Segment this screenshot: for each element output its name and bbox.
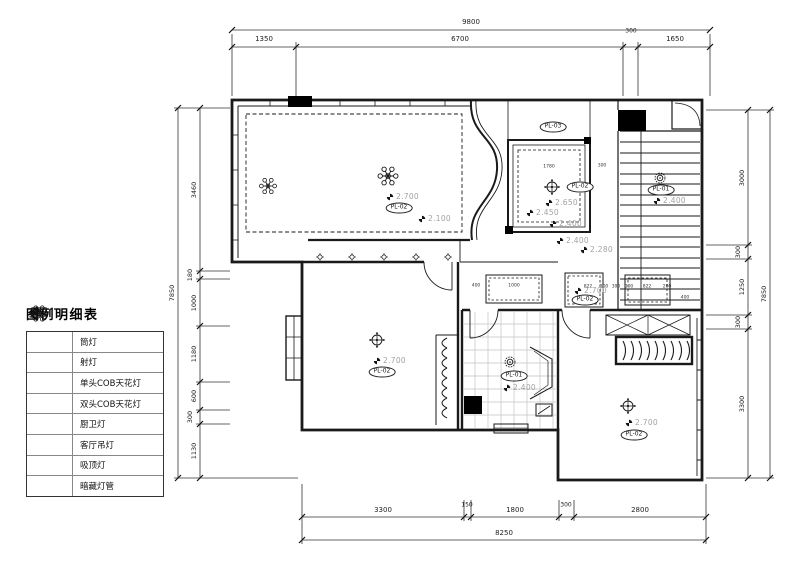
dim-right-overall: 7850 <box>760 286 768 303</box>
spotlight-icon <box>387 194 393 200</box>
height-living-edge: 2.100 <box>428 214 451 223</box>
dim-left-1: 3460 <box>190 182 198 199</box>
downlight-icon <box>27 332 73 352</box>
legend-label: 单头COB天花灯 <box>73 377 163 389</box>
spotlight-icon <box>27 353 73 373</box>
height-living: 2.700 <box>396 192 419 201</box>
legend-label: 射灯 <box>73 356 163 368</box>
legend-table: 筒灯 射灯 单头COB天花灯 双头COB天花灯 <box>26 331 164 497</box>
tag-pl01-stairs: PL-01 <box>648 185 675 196</box>
structural-columns <box>288 96 646 414</box>
tag-pl02-dining: PL-02 <box>567 182 594 193</box>
tag-pl01-bath: PL-01 <box>501 371 528 382</box>
dim-right-1: 3000 <box>738 170 746 187</box>
dim-left-2: 180 <box>186 269 194 281</box>
dim-inner-cove-4: 100 <box>625 285 634 290</box>
legend-row: 客厅吊灯 <box>27 434 163 455</box>
tag-pl02-bedroom1: PL-02 <box>369 367 396 378</box>
height-bedroom1: 2.700 <box>383 356 406 365</box>
ceiling-lamp-icon <box>27 456 73 476</box>
dim-inner-hall-2: 1000 <box>508 284 519 289</box>
dim-inner-cove-6: 200 <box>663 285 672 290</box>
dim-inner-cove-7: 400 <box>681 296 690 301</box>
dim-right-2: 300 <box>734 246 742 258</box>
legend-label: 暗藏灯管 <box>73 480 163 492</box>
downlight-icon <box>412 253 420 261</box>
dim-top-overall: 9800 <box>462 18 480 26</box>
tag-pl02-living: PL-02 <box>386 203 413 214</box>
dim-inner-cove-5: 822 <box>643 285 652 290</box>
dim-top-2: 6700 <box>451 35 469 43</box>
living-chandelier-icon <box>378 167 398 185</box>
stairs-kitchen-bath-light-icon <box>655 173 665 183</box>
spotlight-icon <box>626 420 632 426</box>
bedroom1-ceiling-lamp-icon <box>369 332 385 348</box>
dim-left-6: 300 <box>186 411 194 423</box>
dim-bottom-5: 2800 <box>631 506 649 514</box>
downlight-icon <box>380 253 388 261</box>
downlight-icon <box>348 253 356 261</box>
legend-row: 暗藏灯管 <box>27 475 163 496</box>
dim-right-4: 300 <box>734 316 742 328</box>
dim-left-5: 600 <box>190 390 198 402</box>
legend-label: 双头COB天花灯 <box>73 398 163 410</box>
dim-inner-cove-3: 390 <box>612 285 621 290</box>
legend-row: 厨卫灯 <box>27 413 163 434</box>
dim-top-4: 1650 <box>666 35 684 43</box>
legend-label: 筒灯 <box>73 336 163 348</box>
cob-single-icon <box>27 373 73 393</box>
spotlight-icon <box>546 200 552 206</box>
dim-left-7: 1130 <box>190 443 198 460</box>
living-chandelier-icon <box>27 435 73 455</box>
dim-bottom-overall: 8250 <box>495 529 513 537</box>
tag-pl03: PL-03 <box>540 122 567 133</box>
legend-row: 筒灯 <box>27 332 163 352</box>
legend-label: 吸顶灯 <box>73 459 163 471</box>
concealed-tube-icon <box>27 476 73 496</box>
dim-left-4: 1180 <box>190 346 198 363</box>
tag-pl02-bedroom2: PL-02 <box>621 430 648 441</box>
legend-row: 双头COB天花灯 <box>27 393 163 414</box>
dim-bottom-3: 1800 <box>506 506 524 514</box>
spotlight-icon <box>504 385 510 391</box>
cob-double-icon <box>27 394 73 414</box>
dim-bottom-2: 150 <box>461 502 472 509</box>
height-hall: 2.700 <box>584 286 607 295</box>
bedroom2-ceiling-lamp-icon <box>620 398 636 414</box>
legend-panel: 图例明细表 筒灯 射灯 单头COB天花灯 <box>26 304 164 497</box>
height-bedroom2: 2.700 <box>635 418 658 427</box>
legend-row: 吸顶灯 <box>27 455 163 476</box>
spotlight-icon <box>527 210 533 216</box>
spotlight-icon <box>581 247 587 253</box>
legend-row: 单头COB天花灯 <box>27 372 163 393</box>
dim-bottom-4: 300 <box>560 502 571 509</box>
dining-ceiling-lamp-icon <box>544 179 560 195</box>
height-dining-2: 2.450 <box>536 208 559 217</box>
dim-inner-dining-offset: 300 <box>598 164 607 169</box>
dim-left-overall: 7850 <box>168 285 176 302</box>
dim-bottom-1: 3300 <box>374 506 392 514</box>
height-stairs: 2.400 <box>663 196 686 205</box>
spotlight-icon <box>575 288 581 294</box>
dim-left-3: 1000 <box>190 295 198 312</box>
legend-row: 射灯 <box>27 352 163 373</box>
spotlight-icon <box>374 358 380 364</box>
height-bath: 2.400 <box>513 383 536 392</box>
spotlight-icon <box>550 221 556 227</box>
dim-inner-dining-width: 1780 <box>543 165 554 170</box>
bath-kitchen-bath-light-icon <box>505 357 515 367</box>
tag-pl02-hall: PL-02 <box>572 295 599 306</box>
dim-inner-hall-1: 400 <box>472 284 481 289</box>
downlight-icon <box>316 253 324 261</box>
spotlight-icon <box>557 238 563 244</box>
dim-right-3: 1250 <box>738 279 746 296</box>
legend-label: 厨卫灯 <box>73 418 163 430</box>
height-dining-1: 2.650 <box>555 198 578 207</box>
spotlight-icon <box>419 216 425 222</box>
height-dining-3: 2.400 <box>559 219 582 228</box>
spotlight-icon <box>654 198 660 204</box>
height-hall-beam: 2.280 <box>590 245 613 254</box>
dim-right-5: 3300 <box>738 396 746 413</box>
kitchen-bath-light-icon <box>27 414 73 434</box>
balcony-chandelier-icon <box>260 178 277 193</box>
dim-top-1: 1350 <box>255 35 273 43</box>
dim-top-3: 300 <box>625 28 636 35</box>
downlight-icon <box>444 253 452 261</box>
ceiling-lighting-plan: 9800 1350 6700 300 1650 7850 3460 180 10… <box>0 0 800 572</box>
height-dining-4: 2.400 <box>566 236 589 245</box>
legend-label: 客厅吊灯 <box>73 439 163 451</box>
